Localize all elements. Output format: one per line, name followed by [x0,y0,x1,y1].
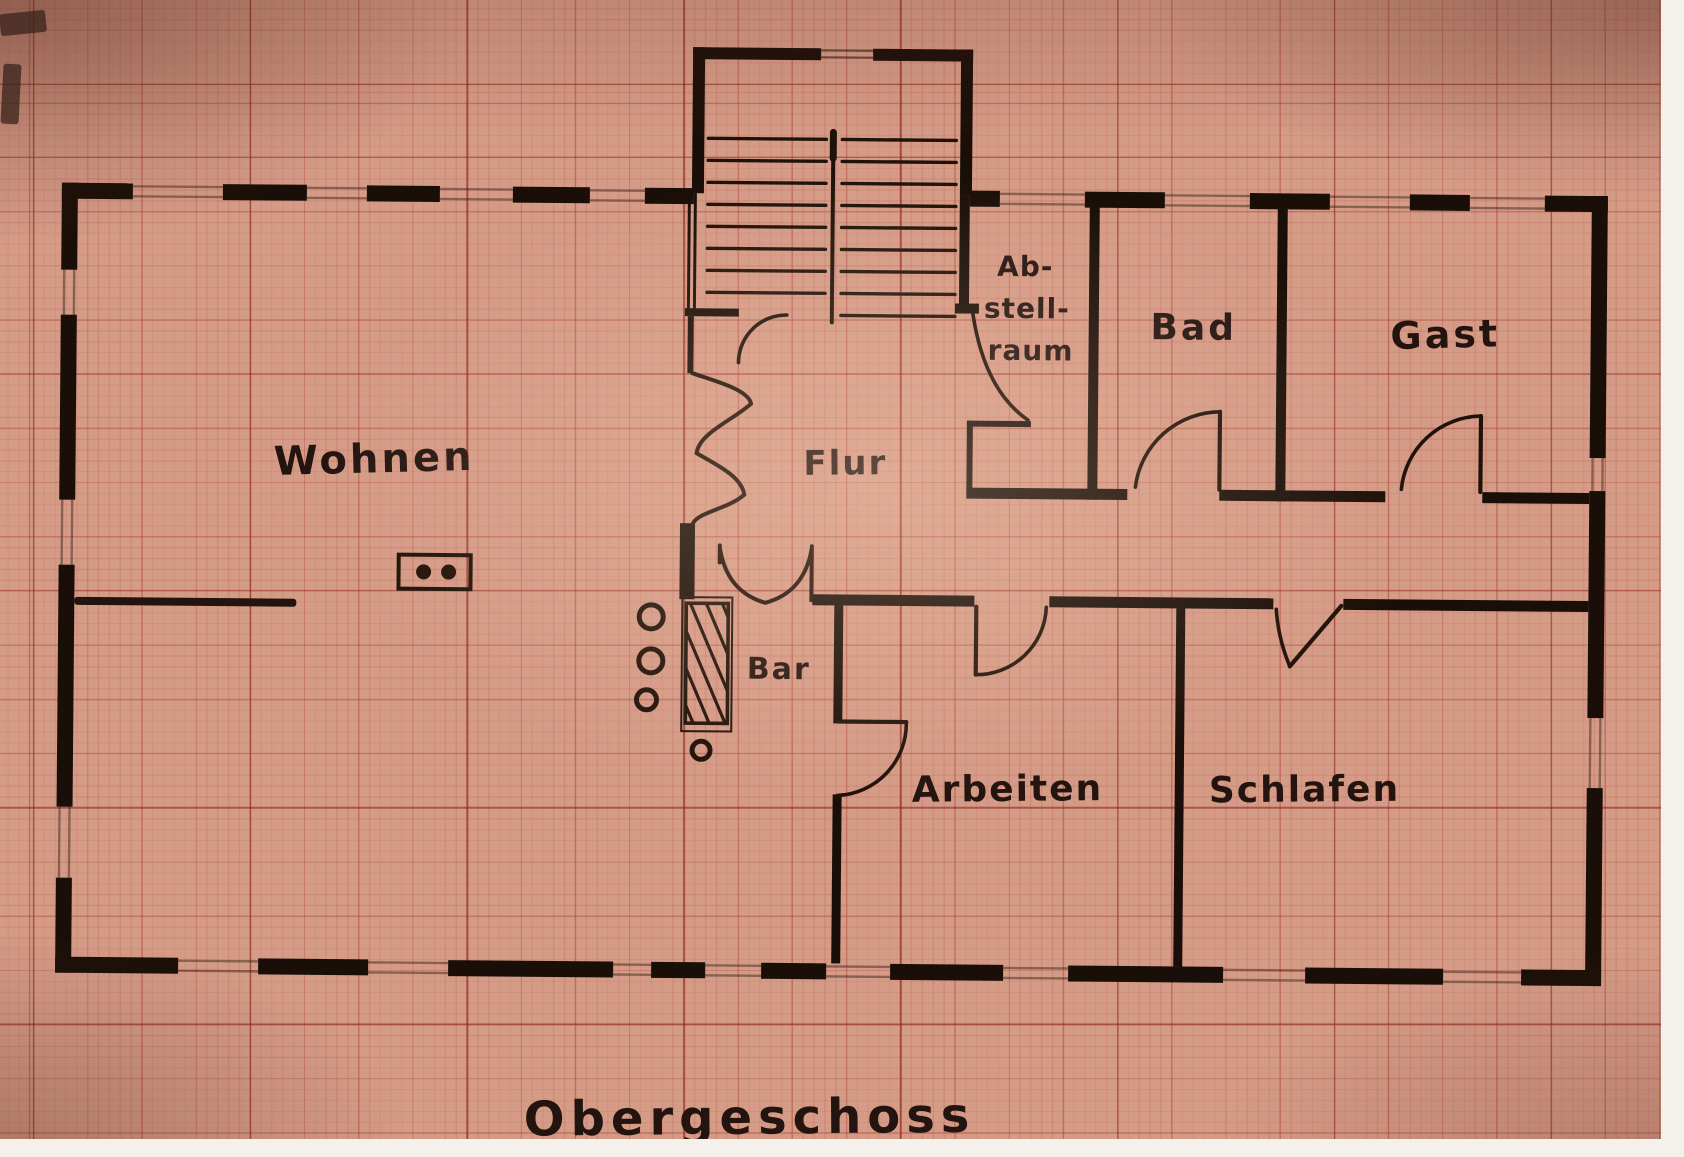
partition-line [74,597,296,607]
room-label-bar: Bar [747,652,811,688]
room-label-flur: Flur [803,443,887,484]
bad-door [1135,411,1220,490]
photo-artifact-mark [0,64,21,125]
room-label-arbeiten: Arbeiten [912,768,1104,811]
room-label-abstellraum-line1: Ab- [997,250,1054,283]
schlafen-door [1276,605,1342,667]
stair-divider [832,132,834,322]
room-label-wohnen: Wohnen [273,434,475,485]
staircase [691,47,981,324]
stairwell-top-window [821,50,873,57]
interior-walls [676,193,1592,970]
double-swing-door [719,545,811,603]
room-label-abstellraum-line2: stell- [984,292,1070,326]
doors [718,311,1482,801]
wohnen-flur-leaf-doors [691,373,751,524]
floor-plan-svg: Wohnen Flur Ab- stell- raum Bad Gast Bar… [0,0,1684,1157]
room-label-gast: Gast [1390,311,1501,358]
room-label-bad: Bad [1150,307,1237,349]
photo-border-bottom [0,1139,1684,1157]
arbeiten-top-door [976,607,1047,676]
wohnen-arbeiten-door [838,721,907,796]
room-labels: Wohnen Flur Ab- stell- raum Bad Gast Bar… [270,244,1502,816]
floor-plan-photo: Wohnen Flur Ab- stell- raum Bad Gast Bar… [0,0,1684,1157]
gast-door [1401,415,1481,492]
room-label-abstellraum-line3: raum [987,334,1073,368]
stair-door-arc [738,315,786,363]
photo-border-right [1661,0,1684,1157]
stove-symbol [398,555,470,590]
room-label-schlafen: Schlafen [1209,769,1401,812]
